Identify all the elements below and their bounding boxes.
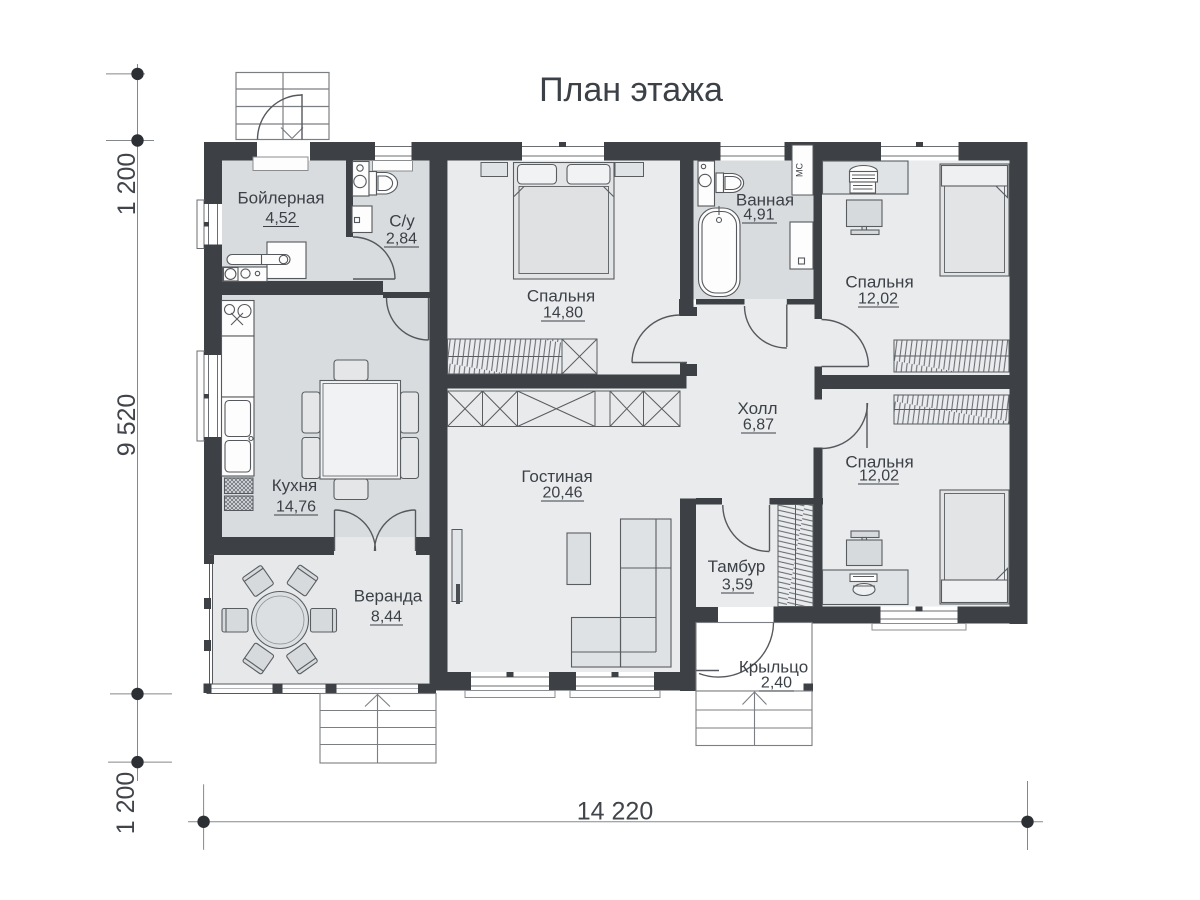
svg-text:12,02: 12,02 xyxy=(859,468,899,485)
svg-text:4,91: 4,91 xyxy=(743,207,774,224)
svg-text:3,59: 3,59 xyxy=(722,577,753,594)
svg-text:9 520: 9 520 xyxy=(113,394,141,457)
svg-text:14,80: 14,80 xyxy=(543,305,583,322)
svg-text:Спальня: Спальня xyxy=(845,273,913,292)
svg-text:Тамбур: Тамбур xyxy=(708,557,766,576)
svg-text:Спальня: Спальня xyxy=(527,287,595,306)
svg-text:12,02: 12,02 xyxy=(858,291,898,308)
svg-text:14,76: 14,76 xyxy=(276,499,316,516)
svg-text:14 220: 14 220 xyxy=(577,798,653,826)
svg-text:8,44: 8,44 xyxy=(371,609,402,626)
svg-text:6,87: 6,87 xyxy=(743,417,774,434)
svg-text:Бойлерная: Бойлерная xyxy=(238,189,325,208)
svg-text:План этажа: План этажа xyxy=(539,71,723,109)
svg-text:МС: МС xyxy=(795,163,805,177)
svg-text:Холл: Холл xyxy=(737,399,777,418)
svg-text:2,40: 2,40 xyxy=(761,675,792,692)
svg-text:С/у: С/у xyxy=(389,212,415,231)
svg-text:Гостиная: Гостиная xyxy=(521,467,592,486)
svg-text:1 200: 1 200 xyxy=(113,153,141,216)
svg-text:Веранда: Веранда xyxy=(354,587,423,606)
svg-text:4,52: 4,52 xyxy=(265,210,296,227)
svg-text:2,84: 2,84 xyxy=(386,231,417,248)
svg-text:20,46: 20,46 xyxy=(542,485,582,502)
svg-text:Кухня: Кухня xyxy=(272,476,318,495)
svg-text:1 200: 1 200 xyxy=(112,772,140,835)
